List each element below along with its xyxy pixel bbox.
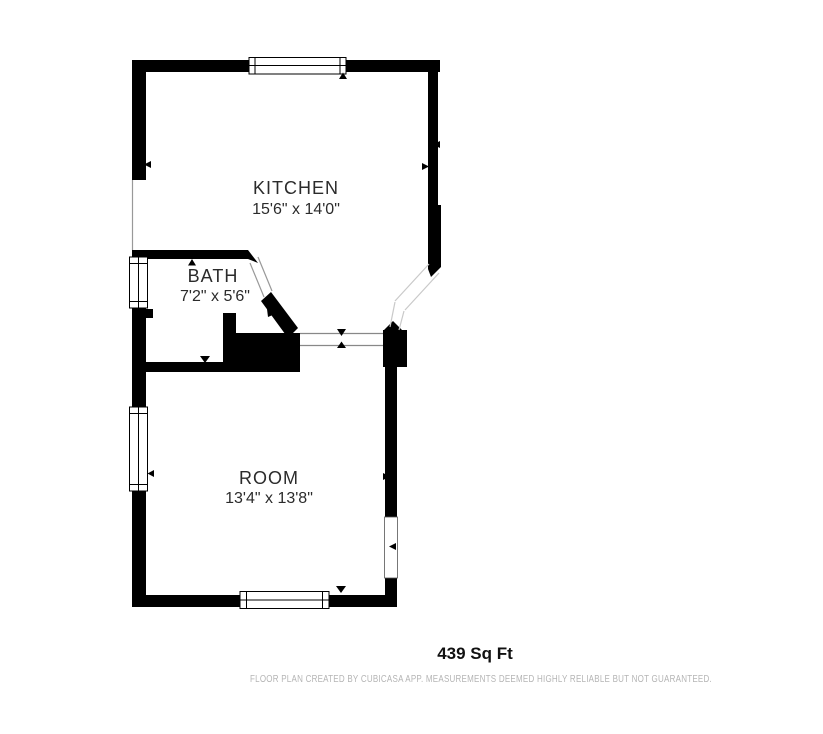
- bath-diagonal-wall: [261, 292, 298, 338]
- marker-room-left-window-icon: [148, 470, 155, 477]
- kitchen-door-line-1: [405, 273, 439, 310]
- room-right-wall-block: [383, 330, 407, 367]
- bath-top-wall: [132, 250, 248, 259]
- bath-door-line-2: [258, 257, 272, 291]
- marker-kitchen-right-inner-icon: [422, 163, 429, 170]
- kitchen-door-line-4: [399, 311, 404, 330]
- marker-threshold-down-icon: [337, 329, 346, 336]
- room-left-wall-lower: [132, 491, 146, 596]
- marker-bath-top-icon: [188, 259, 196, 266]
- kitchen-left-wall: [132, 60, 146, 180]
- marker-room-bottom-icon: [336, 586, 346, 593]
- disclaimer-text: FLOOR PLAN CREATED BY CUBICASA APP. MEAS…: [250, 674, 712, 685]
- kitchen-door-line-2: [395, 264, 429, 301]
- room-left-window: [130, 407, 148, 491]
- floor-plan-drawing: KITCHEN 15'6" x 14'0" BATH 7'2" x 5'6" R…: [0, 0, 823, 734]
- total-area-label: 439 Sq Ft: [437, 644, 513, 663]
- room-left-wall-upper: [132, 372, 146, 408]
- kitchen-right-wall-bevel: [428, 261, 441, 277]
- room-dimensions: 13'4" x 13'8": [225, 490, 313, 507]
- kitchen-dimensions: 15'6" x 14'0": [252, 201, 340, 218]
- bath-label: BATH: [188, 266, 239, 286]
- bath-door-line-1: [250, 263, 264, 297]
- kitchen-right-wall-upper: [428, 60, 438, 205]
- kitchen-right-wall-lower: [428, 205, 441, 261]
- room-bottom-window: [240, 592, 329, 609]
- bath-stub-wall: [223, 313, 236, 363]
- marker-bath-bottom-icon: [200, 356, 210, 363]
- floor-plan-page: KITCHEN 15'6" x 14'0" BATH 7'2" x 5'6" R…: [0, 0, 823, 734]
- bath-left-wall-step: [146, 309, 153, 318]
- bath-left-window: [130, 257, 148, 308]
- bath-dimensions: 7'2" x 5'6": [180, 288, 250, 305]
- hall-wall-block: [236, 333, 300, 372]
- kitchen-top-window: [249, 58, 346, 75]
- bath-bottom-wall: [132, 362, 236, 372]
- bath-top-wall-bevel: [248, 250, 258, 263]
- room-label: ROOM: [239, 468, 299, 488]
- room-right-wall-upper: [385, 366, 397, 517]
- kitchen-label: KITCHEN: [253, 178, 339, 198]
- marker-threshold-up-icon: [337, 342, 346, 349]
